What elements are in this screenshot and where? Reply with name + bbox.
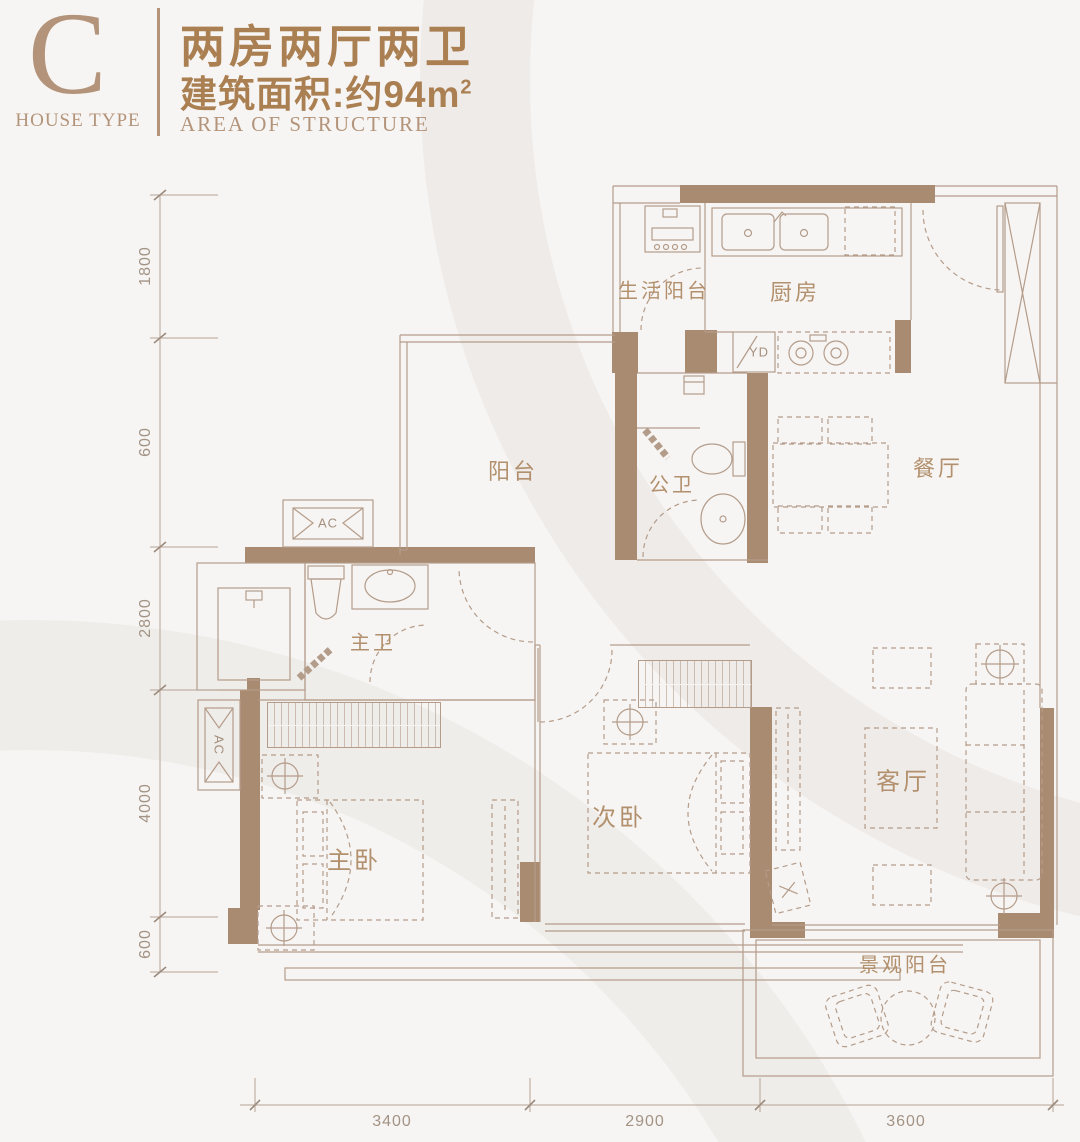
dim-left-600b: 600	[137, 929, 155, 959]
washing-machine	[645, 206, 700, 252]
room-label-living-room: 客厅	[876, 762, 930, 797]
dining-chair	[828, 506, 872, 533]
toilet-tank	[308, 566, 344, 579]
room-label-balcony: 阳台	[488, 454, 538, 486]
pillow	[721, 812, 743, 854]
dim-bottom-2900: 2900	[625, 1113, 665, 1131]
dim-bottom-3400: 3400	[372, 1113, 412, 1131]
side-table	[873, 865, 931, 905]
side-table	[873, 648, 931, 688]
room-label-master-bedroom: 主卧	[327, 841, 381, 876]
balcony-chair	[823, 983, 890, 1049]
yd-annotation: YD	[749, 345, 769, 360]
second-bedroom-furniture	[588, 700, 750, 873]
master-wardrobe	[267, 702, 441, 748]
balcony-table	[881, 991, 935, 1045]
thin-walls	[197, 186, 1057, 1076]
toilet-bowl	[692, 444, 732, 474]
master-bath-fold-door	[299, 648, 332, 678]
dim-left-1800: 1800	[137, 246, 155, 286]
room-label-master-bath: 主卫	[350, 627, 396, 656]
wash-basin	[701, 494, 745, 544]
room-label-public-bath: 公卫	[649, 469, 695, 498]
public-bath-door-arc	[643, 500, 700, 557]
plant	[765, 862, 811, 913]
second-wardrobe	[638, 660, 752, 708]
room-label-life-balcony: 生活阳台	[618, 275, 710, 304]
floorplan-page: C HOUSE TYPE 两房两厅两卫 建筑面积:约94m2 AREA OF S…	[0, 0, 1080, 1142]
public-bath-fold-door	[645, 430, 668, 458]
small-basin	[684, 376, 704, 394]
second-bedroom-door-arc	[540, 650, 612, 722]
dining-furniture	[773, 417, 888, 533]
dim-left-600a: 600	[137, 427, 155, 457]
entry-door-arc	[923, 210, 1003, 290]
toilet-tank	[733, 442, 745, 476]
pillow	[303, 812, 323, 856]
dim-left-2800: 2800	[137, 598, 155, 638]
room-label-dining-room: 餐厅	[913, 451, 963, 483]
sink-right	[780, 214, 828, 250]
shower-head	[246, 591, 262, 600]
pillow	[721, 761, 743, 803]
dining-chair	[778, 417, 822, 444]
ac-annotation-top: AC	[318, 516, 338, 531]
sink-left	[722, 214, 774, 250]
dim-left-4000: 4000	[137, 783, 155, 823]
pillow	[303, 864, 323, 908]
balcony-chair	[929, 980, 995, 1044]
ac-annotation-left: AC	[212, 735, 227, 755]
toilet-bowl	[311, 579, 341, 619]
master-bedroom-furniture	[258, 755, 518, 950]
room-label-kitchen: 厨房	[770, 275, 820, 307]
fridge	[845, 207, 895, 255]
dining-table	[773, 443, 888, 507]
hallway-door-arc	[459, 568, 533, 642]
room-label-second-bedroom: 次卧	[592, 798, 646, 833]
sofa	[966, 684, 1042, 880]
stove-counter	[778, 332, 890, 373]
dining-chair	[828, 417, 872, 444]
view-balcony-furniture	[823, 980, 995, 1049]
dim-bottom-3600: 3600	[886, 1113, 926, 1131]
burner	[824, 341, 848, 365]
dining-chair	[778, 506, 822, 533]
burner	[789, 341, 813, 365]
room-label-view-balcony: 景观阳台	[859, 949, 951, 978]
